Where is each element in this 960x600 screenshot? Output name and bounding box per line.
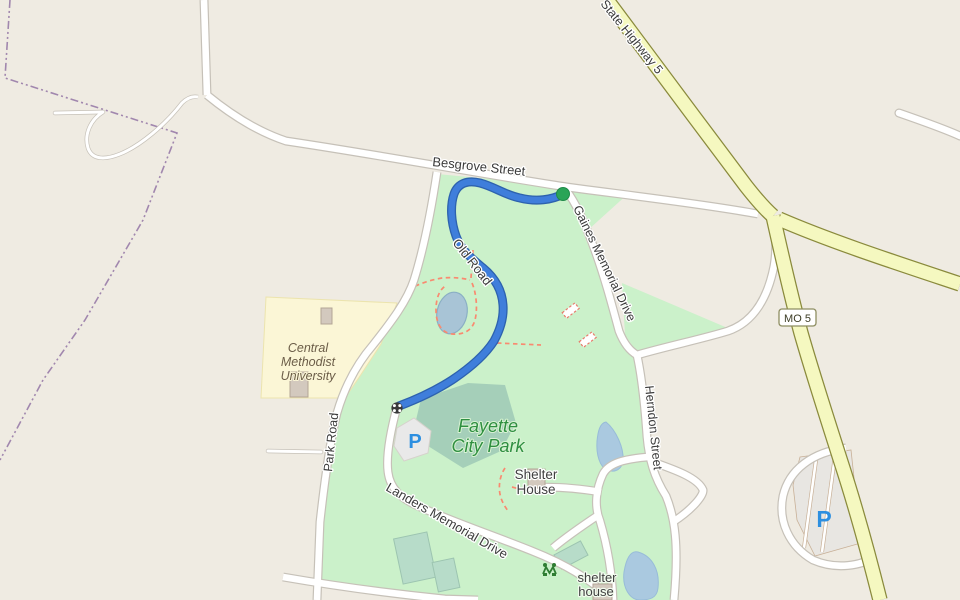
label-park-name-line2: City Park [451, 436, 525, 456]
label-shelter-house-small-line1: shelter [577, 570, 617, 585]
label-university-line2: Methodist [281, 355, 336, 369]
highway-shield-label: MO 5 [784, 313, 811, 325]
gate-icon[interactable] [391, 402, 402, 413]
label-shelter-house-line2: House [516, 482, 555, 497]
label-shelter-house-small-line2: house [578, 584, 613, 599]
map-canvas[interactable]: MO 5 State Highway 5 Besgrove Street Gai… [0, 0, 960, 600]
label-university-line3: University [281, 369, 337, 383]
parking-icon: P [816, 506, 831, 532]
label-shelter-house-line1: Shelter [515, 467, 558, 482]
highway-shield-badge: MO 5 [779, 309, 816, 326]
label-park-name-line1: Fayette [458, 416, 518, 436]
route-start-marker[interactable] [557, 188, 570, 201]
label-university-line1: Central [288, 341, 330, 355]
parking-icon: P [408, 431, 421, 453]
